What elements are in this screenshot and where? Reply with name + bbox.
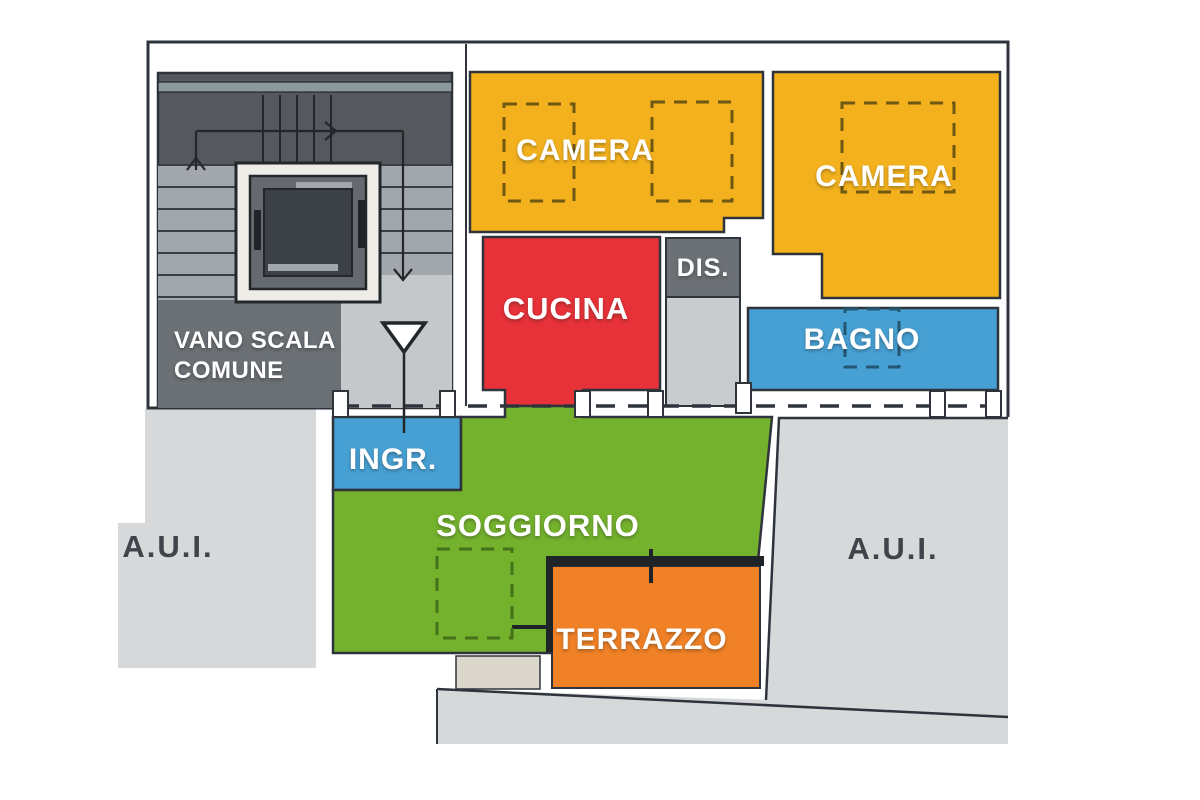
room-bagno — [748, 308, 998, 390]
stairwell-label-line2: COMUNE — [174, 356, 354, 386]
terrace-parapet-left — [546, 556, 553, 652]
room-camera-1 — [470, 72, 763, 232]
exterior-sill-patch — [456, 656, 540, 689]
room-camera-2 — [773, 72, 1000, 298]
stair-right-flight — [378, 165, 452, 275]
stairwell-label: VANO SCALA COMUNE — [174, 326, 354, 386]
stairwell-label-line1: VANO SCALA — [174, 326, 354, 356]
stair-top-stripe — [158, 82, 452, 92]
terrace-parapet-top — [546, 556, 764, 566]
elevator-icon — [236, 163, 380, 302]
room-cucina — [483, 237, 660, 406]
room-terrazzo — [512, 549, 764, 688]
room-ingresso — [333, 417, 461, 490]
floor-plan: VANO SCALA COMUNE CAMERA CAMERA DIS. CUC… — [0, 0, 1200, 800]
aui-left-area — [118, 409, 316, 668]
room-disimpegno — [666, 238, 740, 297]
floor-plan-drawing — [0, 0, 1200, 800]
stair-left-flight — [158, 165, 236, 303]
